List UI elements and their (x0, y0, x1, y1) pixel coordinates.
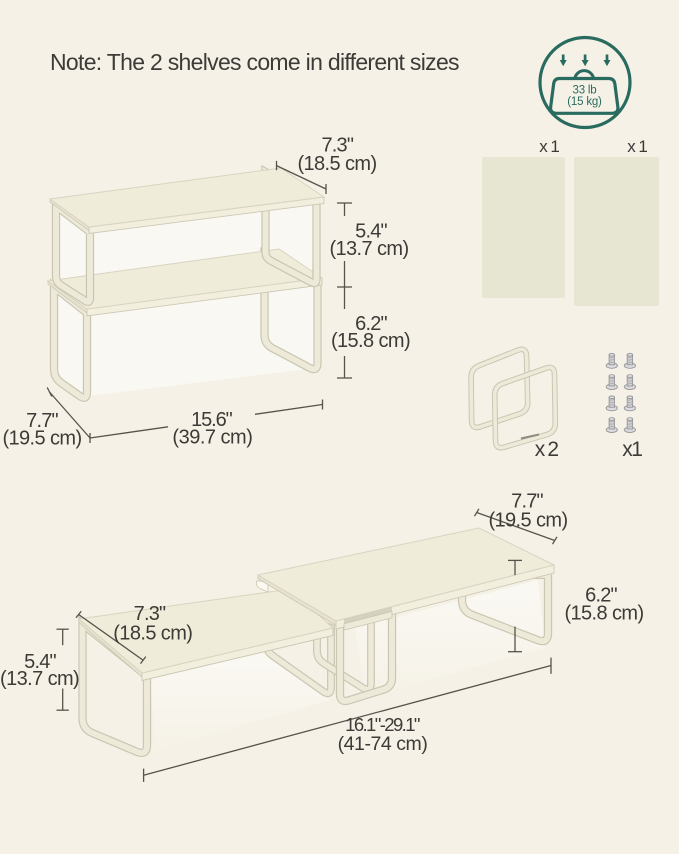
svg-text:(15.8 cm): (15.8 cm) (331, 330, 410, 352)
svg-text:(18.5 cm): (18.5 cm) (297, 153, 376, 175)
svg-text:16.1"-29.1": 16.1"-29.1" (345, 714, 420, 735)
svg-text:(13.7 cm): (13.7 cm) (0, 668, 79, 690)
svg-text:x 1: x 1 (539, 137, 559, 156)
svg-text:(41-74 cm): (41-74 cm) (338, 733, 428, 755)
svg-text:(39.7 cm): (39.7 cm) (172, 427, 252, 449)
svg-text:(18.5 cm): (18.5 cm) (113, 623, 192, 645)
svg-text:33 lb: 33 lb (573, 85, 597, 97)
svg-text:(19.5 cm): (19.5 cm) (2, 428, 81, 450)
svg-text:(19.5 cm): (19.5 cm) (488, 510, 567, 532)
svg-text:(15 kg): (15 kg) (567, 96, 602, 108)
svg-text:x1: x1 (622, 438, 642, 461)
svg-text:(15.8 cm): (15.8 cm) (564, 603, 643, 625)
svg-text:x 1: x 1 (627, 137, 647, 156)
svg-text:Note: The 2 shelves come in di: Note: The 2 shelves come in different si… (50, 49, 459, 75)
svg-text:x 2: x 2 (535, 438, 559, 461)
svg-text:(13.7 cm): (13.7 cm) (329, 238, 408, 260)
